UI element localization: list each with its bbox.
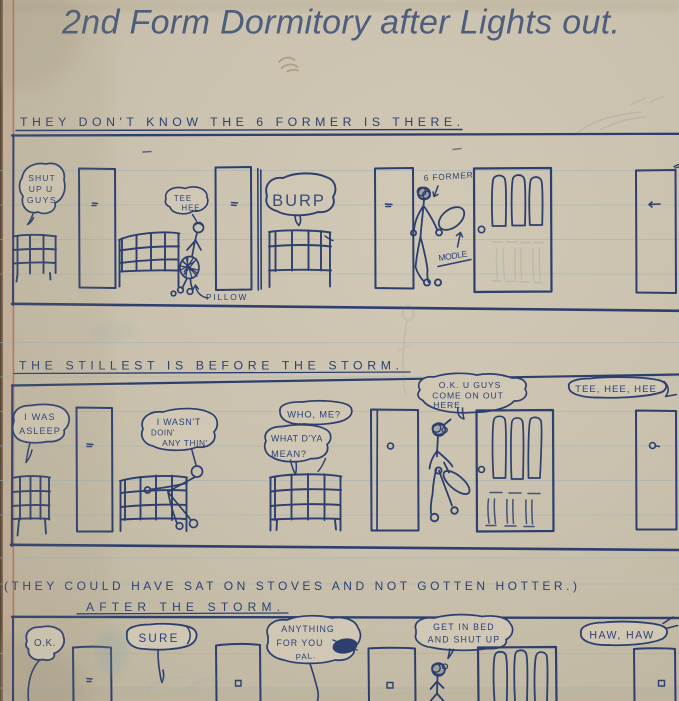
svg-text:COME ON OUT: COME ON OUT <box>432 391 504 401</box>
svg-text:BURP: BURP <box>272 192 326 210</box>
svg-text:HEE: HEE <box>181 204 200 213</box>
svg-text:GET IN BED: GET IN BED <box>433 622 495 632</box>
svg-text:ANYTHING: ANYTHING <box>281 624 334 634</box>
svg-text:WHAT D'YA: WHAT D'YA <box>271 434 323 444</box>
svg-text:SURE: SURE <box>138 632 179 645</box>
svg-text:ANY THIN': ANY THIN' <box>162 438 208 448</box>
svg-text:HAW, HAW: HAW, HAW <box>589 630 654 642</box>
svg-text:I WASN'T: I WASN'T <box>157 417 201 427</box>
svg-text:MEAN?: MEAN? <box>271 449 307 459</box>
svg-text:FOR YOU: FOR YOU <box>277 638 324 648</box>
svg-text:PILLOW: PILLOW <box>206 292 248 302</box>
svg-text:O.K. U GUYS: O.K. U GUYS <box>439 380 501 390</box>
svg-text:HERE: HERE <box>433 400 460 410</box>
svg-text:2nd Form Dormitory after Light: 2nd Form Dormitory after Lights out. <box>61 4 620 42</box>
svg-text:AND SHUT UP: AND SHUT UP <box>428 635 501 645</box>
svg-text:TEE, HEE, HEE: TEE, HEE, HEE <box>575 384 657 395</box>
svg-text:DOIN': DOIN' <box>151 429 175 438</box>
svg-text:WHO, ME?: WHO, ME? <box>287 409 341 420</box>
svg-text:TEE: TEE <box>174 194 192 203</box>
